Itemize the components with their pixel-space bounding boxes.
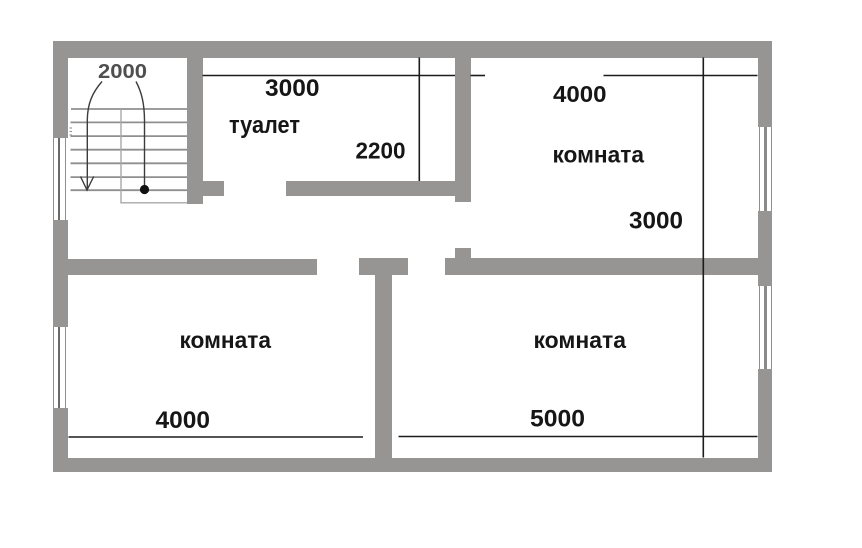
svg-text:4000: 4000 bbox=[156, 407, 211, 434]
svg-text:3000: 3000 bbox=[265, 76, 320, 102]
svg-text:комната: комната bbox=[180, 327, 273, 353]
svg-text:комната: комната bbox=[534, 327, 628, 353]
svg-text:туалет: туалет bbox=[229, 112, 300, 139]
svg-text:4000: 4000 bbox=[553, 81, 607, 107]
svg-text:3000: 3000 bbox=[629, 208, 683, 235]
svg-text:комната: комната bbox=[553, 141, 646, 167]
svg-text:5000: 5000 bbox=[530, 405, 585, 432]
svg-text:2000: 2000 bbox=[98, 60, 147, 83]
svg-text:2200: 2200 bbox=[356, 138, 406, 164]
